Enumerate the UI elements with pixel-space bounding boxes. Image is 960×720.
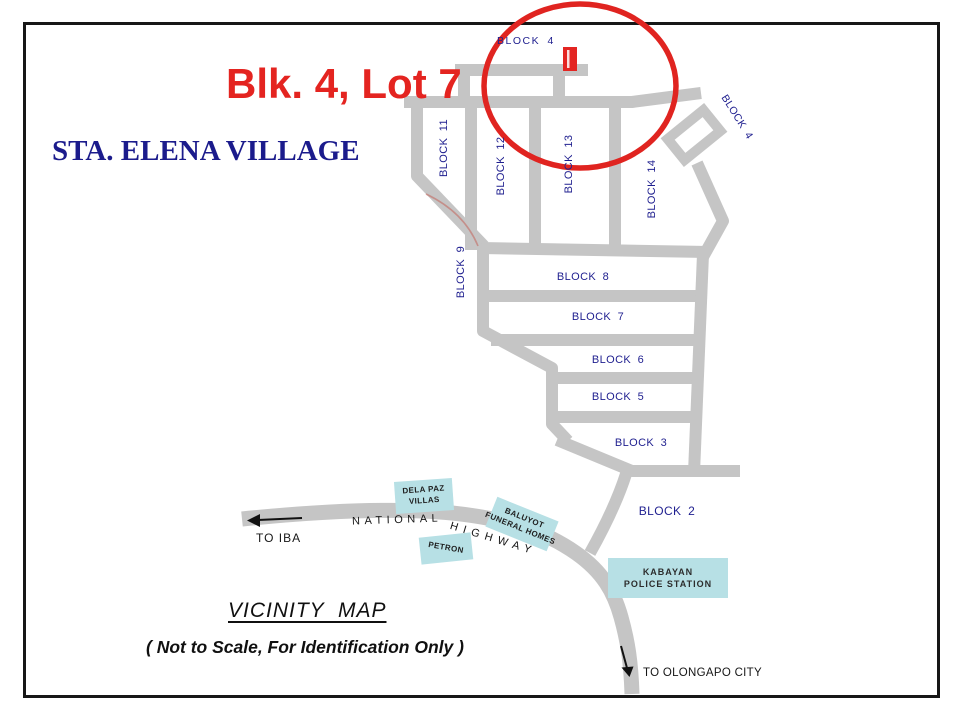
- block-3-label: BLOCK 3: [615, 437, 667, 449]
- vicinity-map-title: VICINITY MAP: [228, 599, 386, 623]
- block-6-label: BLOCK 6: [592, 354, 644, 366]
- kabayan-line1: KABAYAN: [643, 566, 693, 578]
- lot-marker: [563, 47, 577, 71]
- kabayan-line2: POLICE STATION: [624, 578, 712, 590]
- landmark-dela-paz-villas: DELA PAZ VILLAS: [394, 478, 454, 514]
- landmark-kabayan-police-station: KABAYAN POLICE STATION: [608, 558, 728, 598]
- block-11-label: BLOCK 11: [438, 119, 450, 177]
- block-12-label: BLOCK 12: [495, 137, 507, 196]
- village-title: STA. ELENA VILLAGE: [52, 135, 360, 168]
- road-row-top: [481, 248, 708, 252]
- to-olongapo-city-label: TO OLONGAPO CITY: [643, 667, 762, 679]
- lot-title: Blk. 4, Lot 7: [226, 60, 462, 108]
- road-village-connector: [590, 474, 626, 553]
- block-9-label: BLOCK 9: [455, 246, 467, 298]
- red-circle-annotation: [484, 4, 676, 168]
- vicinity-map-drawing: [0, 0, 960, 720]
- block-13-label: BLOCK 13: [563, 135, 575, 194]
- block4-corner-lot-outline: [668, 110, 721, 160]
- dela-paz-line2: VILLAS: [409, 495, 441, 508]
- block-2-label: BLOCK 2: [639, 504, 696, 518]
- road-east-vertical: [694, 254, 703, 473]
- block-7-label: BLOCK 7: [572, 311, 624, 323]
- vicinity-map-note: ( Not to Scale, For Identification Only …: [146, 637, 464, 658]
- road-east-diagonal: [697, 163, 723, 257]
- vicinity-map-page: Blk. 4, Lot 7 STA. ELENA VILLAGE BLOCK 4…: [0, 0, 960, 720]
- landmark-petron: PETRON: [419, 532, 474, 564]
- petron-label: PETRON: [427, 540, 464, 557]
- block-4-top-label: BLOCK 4: [497, 35, 555, 47]
- to-iba-label: TO IBA: [256, 531, 301, 545]
- block-8-label: BLOCK 8: [557, 271, 609, 283]
- block-5-label: BLOCK 5: [592, 391, 644, 403]
- block-14-label: BLOCK 14: [646, 160, 658, 219]
